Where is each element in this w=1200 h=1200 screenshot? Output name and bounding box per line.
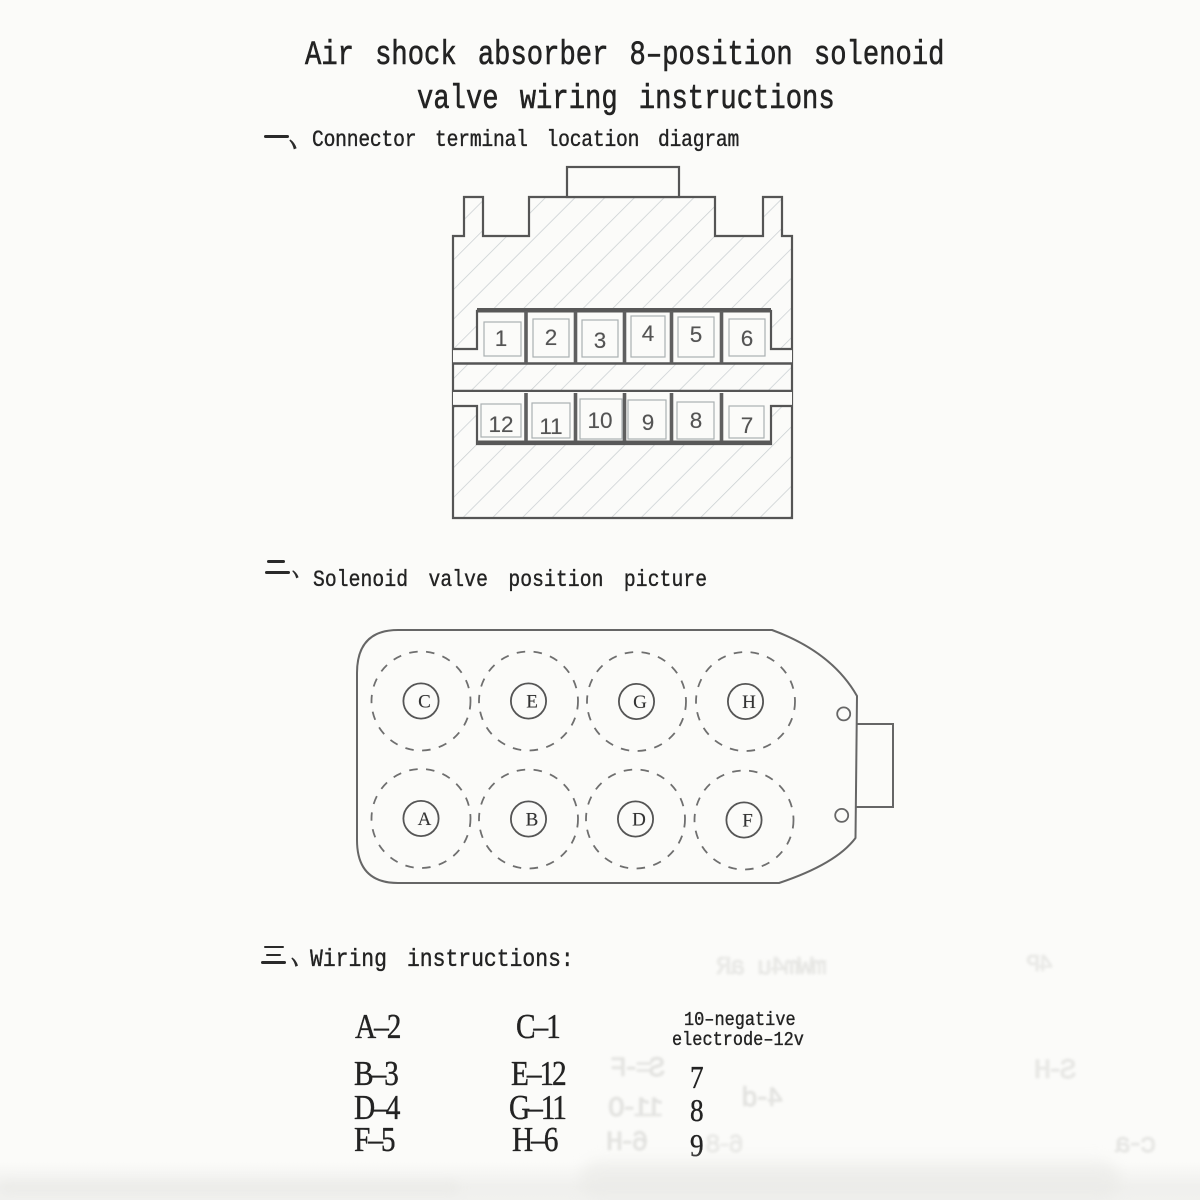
svg-text:12: 12	[488, 412, 513, 437]
svg-text:D: D	[632, 810, 646, 831]
svg-text:C: C	[418, 692, 431, 713]
svg-text:6: 6	[741, 326, 754, 351]
svg-text:E: E	[526, 692, 538, 713]
svg-text:2: 2	[545, 325, 558, 350]
svg-text:A: A	[418, 809, 432, 830]
svg-text:F: F	[742, 811, 753, 832]
svg-text:G: G	[633, 692, 647, 713]
svg-text:9: 9	[642, 410, 655, 435]
svg-text:1: 1	[495, 326, 508, 351]
svg-text:7: 7	[741, 413, 754, 438]
svg-text:B: B	[526, 810, 539, 831]
svg-text:11: 11	[539, 414, 562, 439]
svg-text:3: 3	[594, 328, 607, 353]
svg-text:5: 5	[690, 322, 703, 347]
svg-text:H: H	[742, 692, 756, 713]
svg-text:8: 8	[690, 408, 703, 433]
svg-text:10: 10	[587, 408, 612, 433]
svg-text:4: 4	[642, 321, 655, 346]
